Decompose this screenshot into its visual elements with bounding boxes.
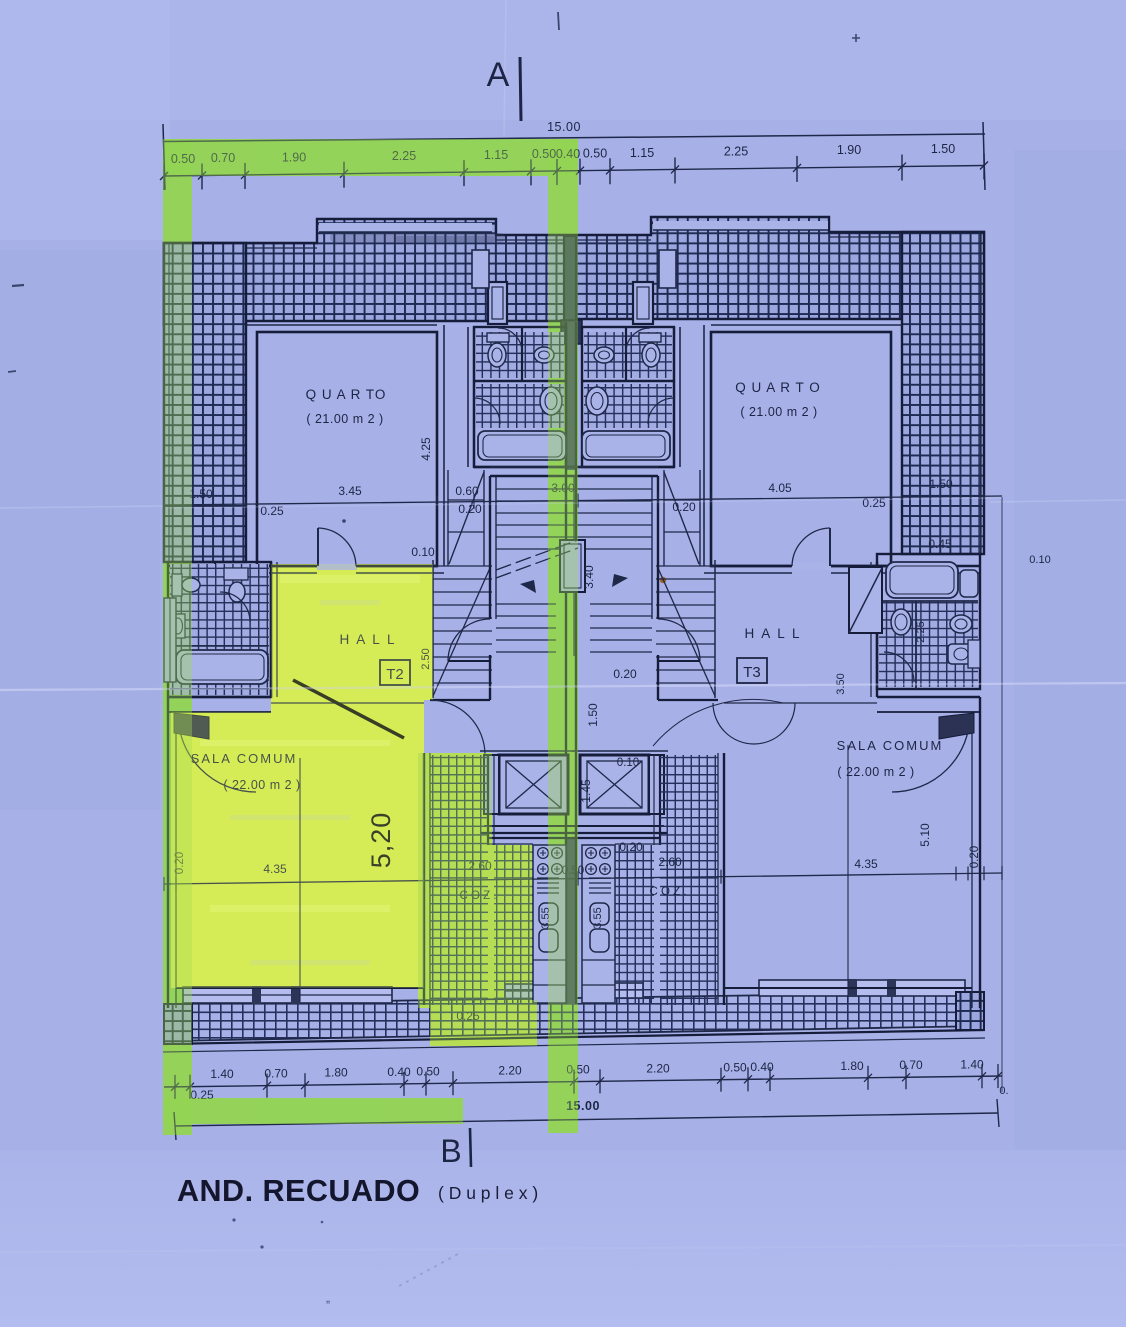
svg-text:1.50: 1.50 xyxy=(929,477,953,491)
svg-text:0.50: 0.50 xyxy=(416,1065,440,1079)
svg-text:1.50: 1.50 xyxy=(189,487,213,501)
svg-text:4.25: 4.25 xyxy=(419,437,433,461)
svg-text:0.: 0. xyxy=(999,1085,1008,1097)
svg-text:3.40: 3.40 xyxy=(582,565,596,589)
svg-text:0.25: 0.25 xyxy=(862,496,886,510)
svg-text:0.60: 0.60 xyxy=(455,484,479,498)
svg-text:Q U A R T O: Q U A R T O xyxy=(735,380,821,395)
svg-text:Q U A R TO: Q U A R TO xyxy=(306,387,387,402)
svg-text:1.90: 1.90 xyxy=(837,143,861,157)
svg-text:1.80: 1.80 xyxy=(840,1059,864,1073)
svg-text:1.40: 1.40 xyxy=(960,1057,984,1071)
svg-text:1.45: 1.45 xyxy=(579,779,593,803)
svg-text:C O Z .: C O Z . xyxy=(649,886,686,898)
svg-text:0.20: 0.20 xyxy=(969,846,981,868)
svg-text:0.10: 0.10 xyxy=(1029,554,1050,566)
svg-text:( 22.00 m 2 ): ( 22.00 m 2 ) xyxy=(837,765,914,779)
svg-text:0.20: 0.20 xyxy=(613,667,637,681)
svg-text:1.15: 1.15 xyxy=(630,146,654,160)
svg-text:0.10: 0.10 xyxy=(617,757,639,769)
svg-text:( 21.00 m 2 ): ( 21.00 m 2 ) xyxy=(306,412,383,426)
svg-text:1.80: 1.80 xyxy=(324,1066,348,1080)
svg-text:0.20: 0.20 xyxy=(619,840,643,854)
svg-text:( 21.00 m 2 ): ( 21.00 m 2 ) xyxy=(740,405,817,419)
svg-text:1.50: 1.50 xyxy=(586,703,600,727)
svg-text:0.10: 0.10 xyxy=(411,545,435,559)
svg-text:1.50: 1.50 xyxy=(931,142,955,156)
svg-text:SALA COMUM: SALA COMUM xyxy=(837,738,944,753)
svg-text:2.60: 2.60 xyxy=(658,855,682,869)
svg-text:2.20: 2.20 xyxy=(498,1063,522,1077)
svg-text:0.50: 0.50 xyxy=(583,146,607,160)
svg-text:0.45: 0.45 xyxy=(928,537,952,551)
svg-text:2.25: 2.25 xyxy=(724,145,748,159)
svg-text:3.45: 3.45 xyxy=(338,484,362,498)
svg-text:3.55: 3.55 xyxy=(592,907,604,928)
svg-text:0.40: 0.40 xyxy=(387,1065,411,1079)
svg-text:2.25: 2.25 xyxy=(915,621,927,642)
svg-text:B: B xyxy=(440,1133,461,1169)
svg-text:T3: T3 xyxy=(743,664,761,681)
svg-text:4.35: 4.35 xyxy=(854,857,878,871)
svg-text:AND. RECUADO: AND. RECUADO xyxy=(177,1174,420,1208)
svg-text:4.05: 4.05 xyxy=(768,481,792,495)
svg-text:H A L L: H A L L xyxy=(744,626,801,641)
svg-text:5.10: 5.10 xyxy=(918,823,932,847)
svg-text:A: A xyxy=(487,56,510,94)
svg-text:0.40: 0.40 xyxy=(750,1060,774,1074)
svg-text:( D u p l e x ): ( D u p l e x ) xyxy=(438,1183,538,1203)
svg-text:15.00: 15.00 xyxy=(547,120,581,134)
svg-text:0.70: 0.70 xyxy=(899,1058,923,1072)
svg-text:1.40: 1.40 xyxy=(210,1067,234,1081)
svg-text:0.50: 0.50 xyxy=(723,1061,747,1075)
svg-text:0.70: 0.70 xyxy=(264,1067,288,1081)
svg-text:2.20: 2.20 xyxy=(646,1062,670,1076)
svg-text:ˮ: ˮ xyxy=(326,1298,330,1313)
